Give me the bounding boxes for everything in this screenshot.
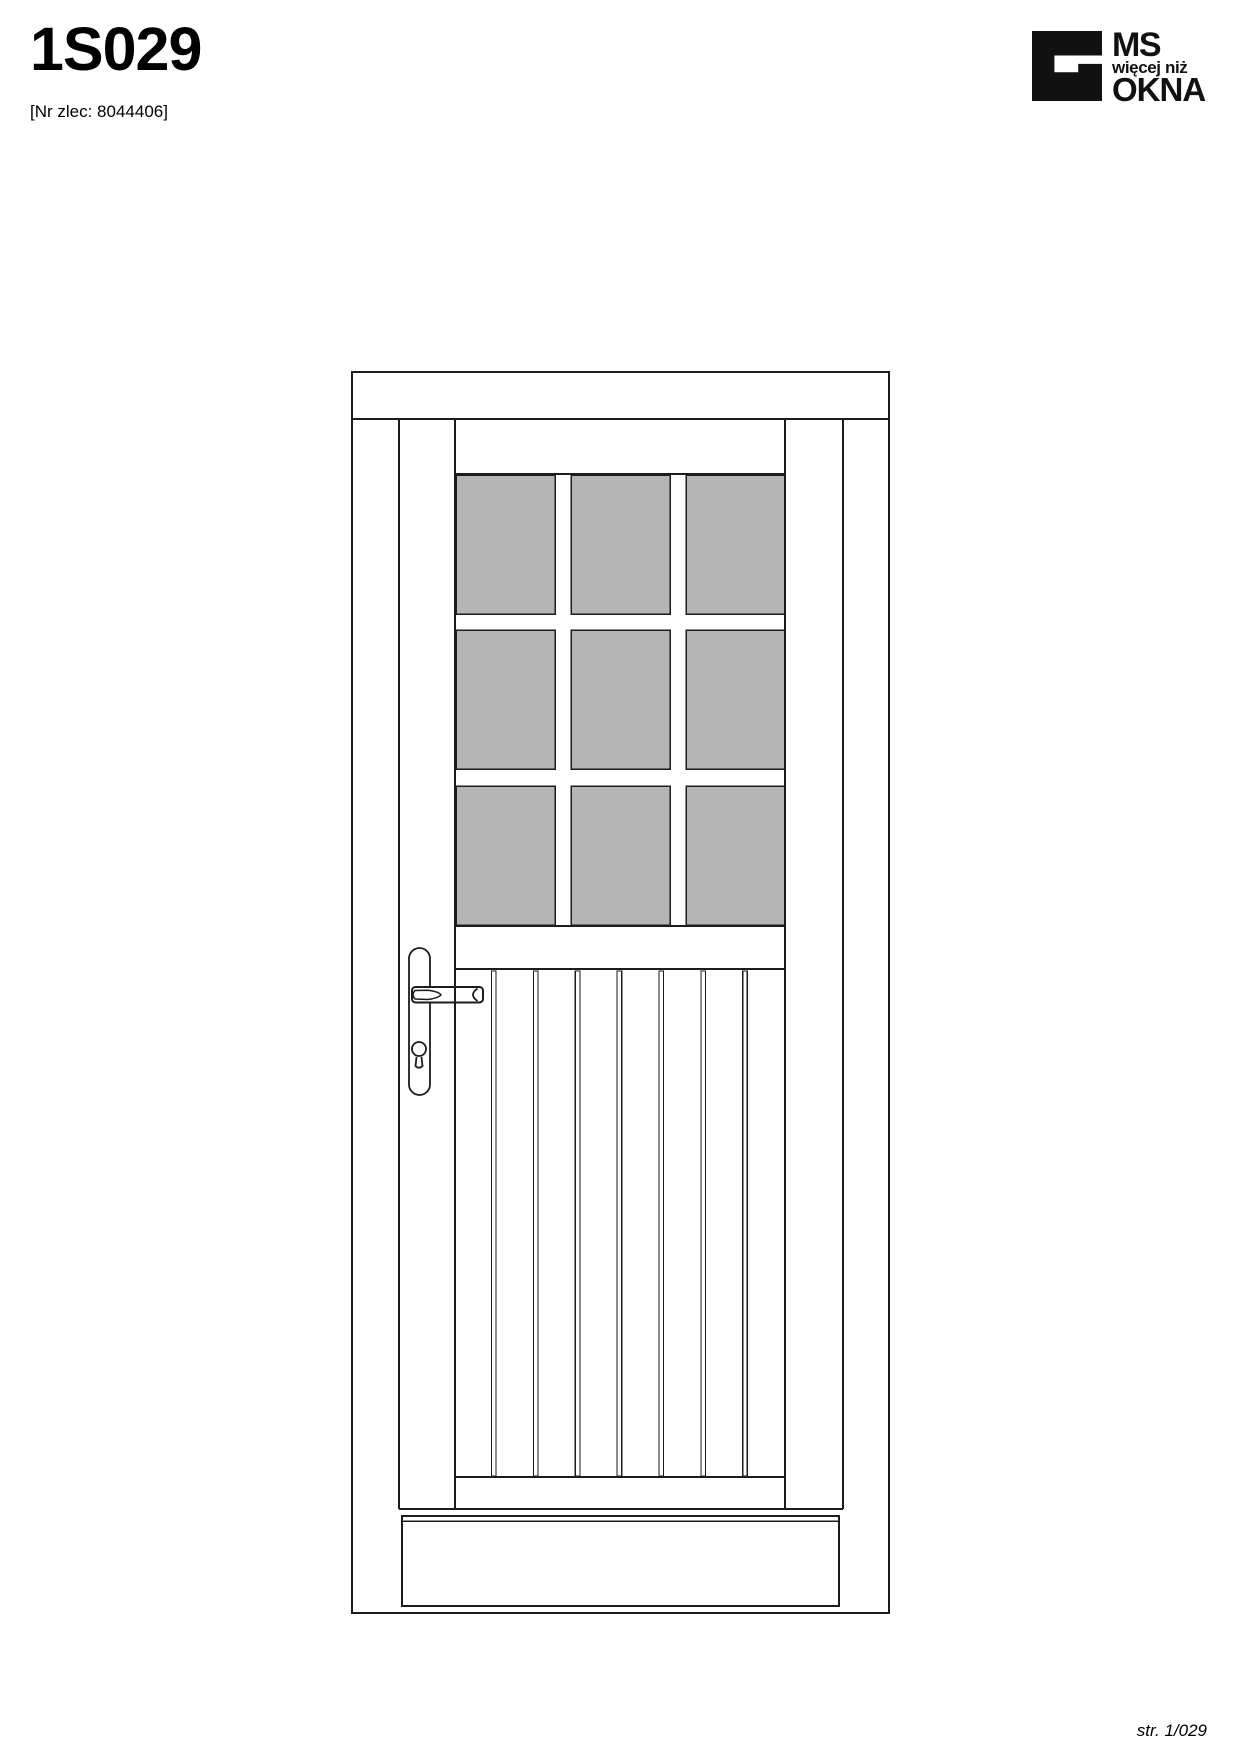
door-technical-drawing — [351, 371, 890, 1614]
glass-pane — [686, 475, 785, 614]
logo-text-ms: MS — [1112, 28, 1160, 62]
order-number: [Nr zlec: 8044406] — [30, 102, 168, 122]
glass-pane — [571, 786, 670, 925]
handle-lever-thumb — [413, 990, 441, 999]
ms-okna-logo-icon — [1032, 30, 1102, 102]
glass-pane — [456, 786, 555, 925]
glass-pane — [571, 630, 670, 769]
plank-groove — [659, 971, 664, 1476]
plank-groove — [533, 971, 538, 1476]
handle-backplate — [409, 948, 430, 1095]
logo-text-okna: OKNA — [1112, 73, 1205, 106]
page-title: 1S029 — [30, 14, 201, 84]
plank-groove — [743, 971, 748, 1476]
page-number: str. 1/029 — [1137, 1721, 1207, 1741]
plank-groove — [492, 971, 497, 1476]
door-handle — [409, 948, 483, 1095]
bottom-panel-box — [402, 1516, 839, 1606]
glass-pane — [686, 630, 785, 769]
glass-pane — [456, 630, 555, 769]
keyhole-cylinder — [412, 1042, 426, 1056]
glazing-grid — [456, 475, 785, 925]
glass-pane — [686, 786, 785, 925]
plank-groove — [575, 971, 580, 1476]
company-logo: MS więcej niż OKNA — [1032, 30, 1212, 104]
document-page: 1S029 [Nr zlec: 8044406] MS więcej niż O… — [0, 0, 1240, 1755]
bottom-panel — [402, 1516, 839, 1606]
plank-grooves — [492, 971, 748, 1476]
keyhole-slot — [416, 1057, 423, 1068]
glass-pane — [571, 475, 670, 614]
plank-groove — [617, 971, 622, 1476]
plank-groove — [701, 971, 706, 1476]
glass-pane — [456, 475, 555, 614]
